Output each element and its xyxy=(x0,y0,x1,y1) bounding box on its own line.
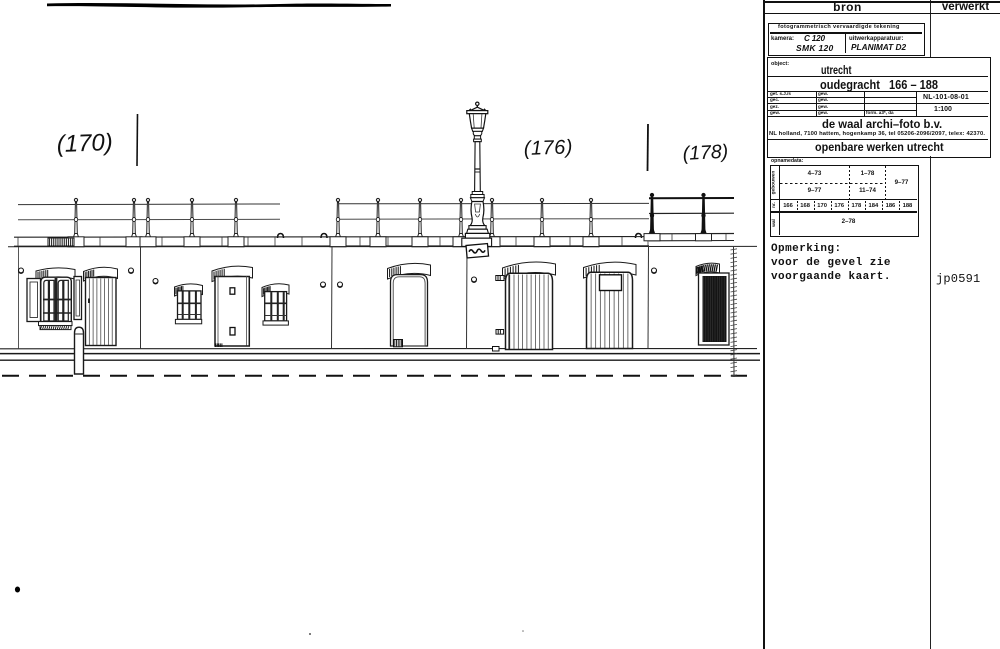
svg-text:(178): (178) xyxy=(682,141,729,165)
svg-text:(170): (170) xyxy=(56,129,113,158)
svg-text:(176): (176) xyxy=(523,136,573,160)
